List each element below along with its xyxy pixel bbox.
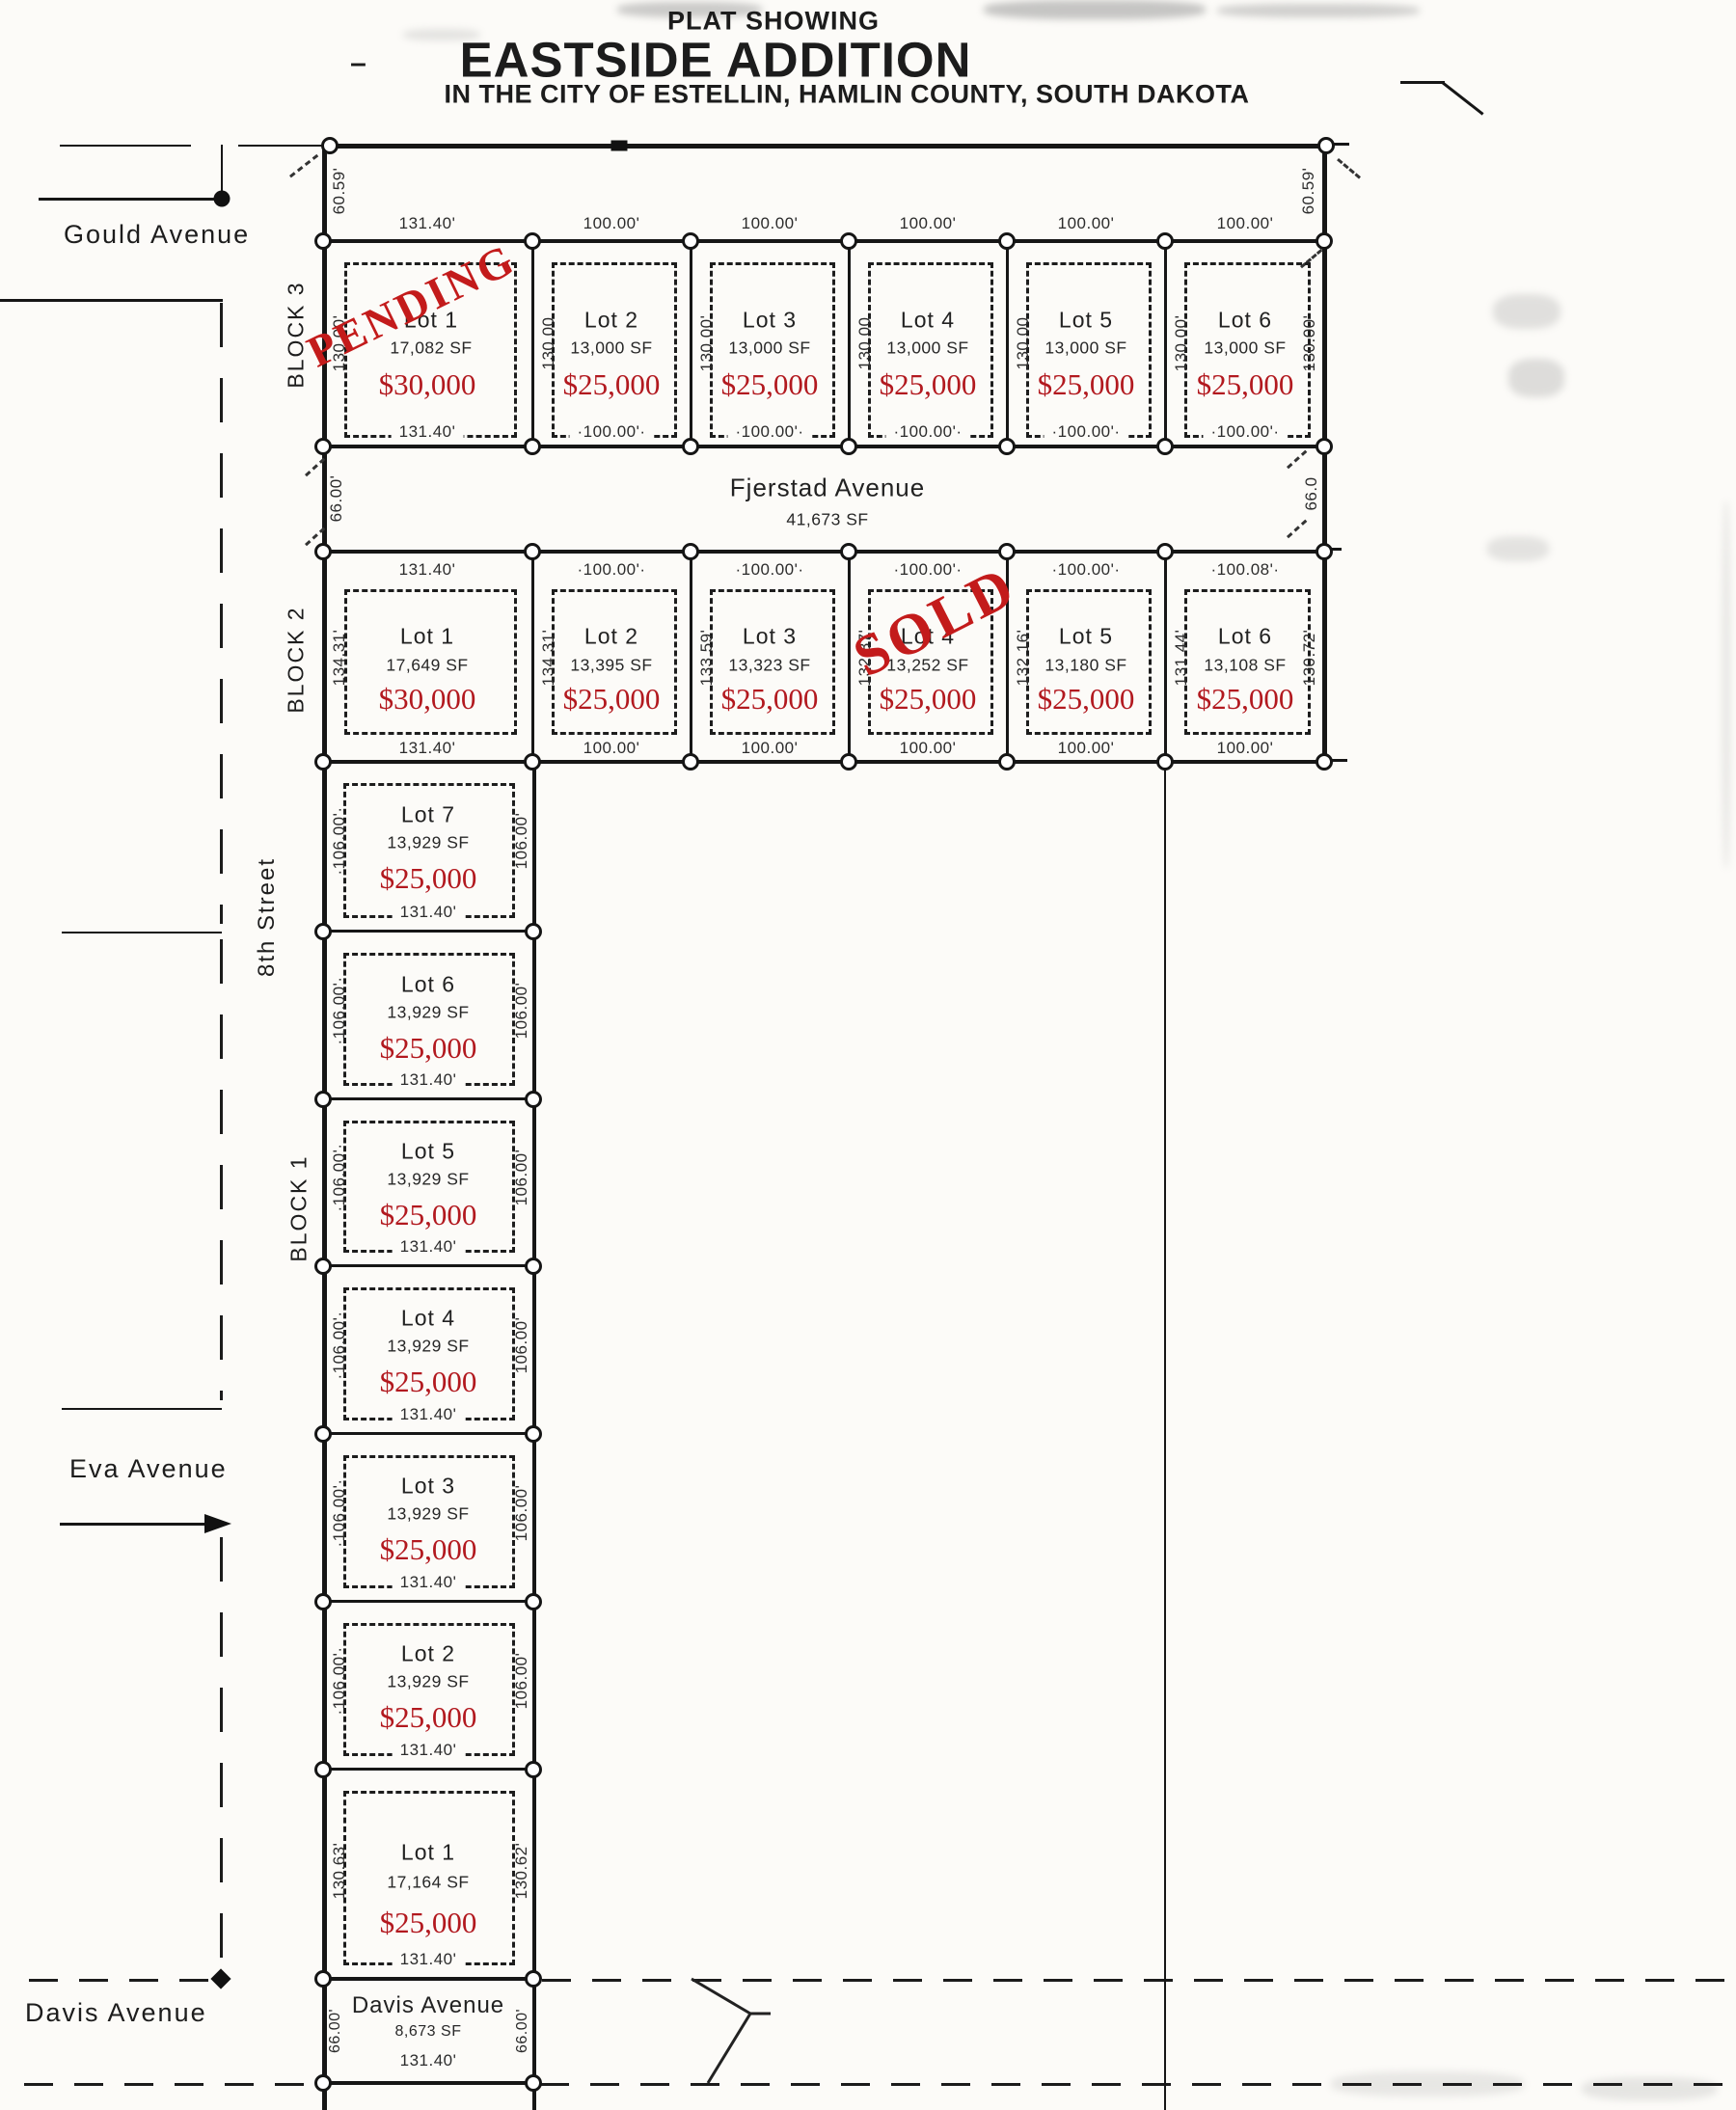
street-label-gould: Gould Avenue bbox=[64, 220, 250, 250]
dim-label: ·106.00'· bbox=[330, 976, 349, 1044]
lot-area: 17,082 SF bbox=[390, 338, 472, 359]
lot-name: Lot 6 bbox=[401, 972, 455, 998]
dim-label: 130.00 bbox=[855, 317, 875, 370]
road-arrowhead-icon bbox=[204, 1514, 231, 1533]
dim-label: 130.63' bbox=[330, 1843, 349, 1900]
lot-name: Lot 4 bbox=[901, 308, 955, 334]
lot-price: $25,000 bbox=[1197, 367, 1294, 402]
dim-label: 100.00' bbox=[900, 214, 957, 233]
lot-name: Lot 1 bbox=[401, 1840, 455, 1866]
dim-label: ·106.00'· bbox=[330, 1478, 349, 1547]
survey-marker-icon bbox=[1317, 137, 1335, 154]
lot-area: 13,108 SF bbox=[1204, 656, 1286, 676]
dim-label: 60.59' bbox=[330, 168, 349, 215]
lot-area: 13,929 SF bbox=[387, 833, 469, 853]
road-intersection-marker bbox=[214, 191, 231, 207]
dim-label: 131.40' bbox=[399, 560, 456, 580]
survey-marker-icon bbox=[998, 753, 1016, 771]
survey-marker-icon bbox=[682, 232, 699, 250]
lot-area: 13,929 SF bbox=[387, 1337, 469, 1357]
dim-label: ·100.00'· bbox=[727, 422, 811, 442]
survey-marker-icon bbox=[525, 1091, 542, 1108]
lot-area: 13,929 SF bbox=[387, 1170, 469, 1190]
dim-label: 131.40' bbox=[399, 739, 456, 758]
lot-price: $25,000 bbox=[380, 1031, 477, 1066]
dim-label: 100.00' bbox=[583, 739, 640, 758]
survey-marker-icon bbox=[314, 1091, 332, 1108]
dim-label: 66.00' bbox=[514, 2009, 531, 2053]
road-line bbox=[238, 145, 330, 147]
lot-line bbox=[323, 1600, 535, 1603]
dim-label: 134.31' bbox=[330, 630, 349, 687]
survey-marker-icon bbox=[524, 753, 541, 771]
street-label-eva: Eva Avenue bbox=[69, 1454, 228, 1484]
lot-price: $25,000 bbox=[880, 367, 977, 402]
lot-area: 13,180 SF bbox=[1044, 656, 1126, 676]
subtitle-leader-line bbox=[1441, 81, 1483, 116]
leader-dash bbox=[1287, 450, 1307, 470]
survey-marker-icon bbox=[525, 1425, 542, 1443]
survey-marker-icon bbox=[682, 543, 699, 560]
lot-name: Lot 3 bbox=[743, 308, 797, 334]
survey-marker-icon bbox=[321, 137, 339, 154]
lot-name: Lot 1 bbox=[400, 624, 454, 650]
survey-marker-icon bbox=[314, 923, 332, 940]
dim-label: 106.00' bbox=[512, 1485, 531, 1542]
lot-price: $25,000 bbox=[380, 1198, 477, 1232]
lot-price: $25,000 bbox=[380, 1700, 477, 1735]
road-centerline-dashed bbox=[220, 303, 223, 924]
survey-marker-icon bbox=[525, 1761, 542, 1778]
street-label-davis-parcel: Davis Avenue bbox=[352, 1992, 504, 2019]
road-line-dashed bbox=[29, 1979, 208, 1982]
lot-name: Lot 4 bbox=[401, 1306, 455, 1332]
lot-price: $25,000 bbox=[563, 367, 661, 402]
scan-artifact bbox=[1487, 536, 1549, 561]
dim-label: 130.00 bbox=[539, 317, 558, 370]
dim-label: 133.59' bbox=[697, 630, 717, 687]
dim-label: ·100.00'· bbox=[1051, 560, 1120, 580]
lot-line bbox=[1164, 240, 1167, 446]
dim-label: 60.59' bbox=[1299, 168, 1318, 215]
dim-label: 100.00' bbox=[1217, 739, 1274, 758]
survey-marker-icon bbox=[525, 1970, 542, 1988]
lot-area: 13,000 SF bbox=[1044, 338, 1126, 359]
survey-marker-icon bbox=[314, 543, 332, 560]
survey-marker-icon bbox=[682, 438, 699, 455]
dim-label: ·100.00'· bbox=[1044, 422, 1127, 442]
dim-label: 100.00' bbox=[583, 214, 640, 233]
survey-marker-icon bbox=[998, 232, 1016, 250]
title-dash: – bbox=[350, 47, 367, 80]
lot-price: $25,000 bbox=[380, 1365, 477, 1399]
dim-label: ·106.00'· bbox=[330, 1143, 349, 1211]
lot-line bbox=[323, 1264, 535, 1267]
survey-marker-icon bbox=[998, 543, 1016, 560]
dim-label: 106.00' bbox=[512, 1653, 531, 1710]
dim-label: 134.31' bbox=[539, 630, 558, 687]
plat-north-boundary bbox=[330, 144, 1326, 149]
dim-label: 131.40' bbox=[393, 1405, 465, 1424]
dim-label: 100.00' bbox=[1058, 739, 1115, 758]
leader-dash bbox=[1337, 158, 1361, 179]
lot-area: 17,164 SF bbox=[387, 1873, 469, 1893]
scan-artifact bbox=[1493, 294, 1560, 329]
survey-marker-icon bbox=[314, 753, 332, 771]
dim-label: 106.00' bbox=[512, 813, 531, 870]
dim-label: 131.40' bbox=[392, 422, 464, 442]
section-line bbox=[1164, 764, 1166, 2110]
dim-label: 66.00' bbox=[327, 475, 346, 523]
dim-label: 131.40' bbox=[393, 1237, 465, 1257]
lot-price: $25,000 bbox=[380, 861, 477, 896]
lot-line bbox=[848, 240, 851, 446]
lot-line bbox=[531, 240, 534, 446]
dim-label: 131.40' bbox=[399, 214, 456, 233]
dim-label: 106.00' bbox=[512, 1317, 531, 1374]
boundary-marker-icon bbox=[611, 141, 628, 151]
lot-price: $30,000 bbox=[379, 682, 476, 717]
dim-label: 100.00' bbox=[900, 739, 957, 758]
dim-label: ·106.00'· bbox=[330, 806, 349, 875]
lot-name: Lot 5 bbox=[401, 1139, 455, 1165]
lot-name: Lot 2 bbox=[584, 624, 638, 650]
survey-marker-icon bbox=[1316, 753, 1333, 771]
block1-label: BLOCK 1 bbox=[286, 1154, 312, 1261]
road-line-dashed bbox=[24, 2083, 319, 2086]
survey-marker-icon bbox=[314, 1970, 332, 1988]
lot-price: $25,000 bbox=[1197, 682, 1294, 717]
fjerstad-area: 41,673 SF bbox=[786, 510, 868, 530]
lot-line bbox=[690, 552, 692, 762]
survey-marker-icon bbox=[525, 2074, 542, 2092]
lot-name: Lot 6 bbox=[1218, 308, 1272, 334]
survey-marker-icon bbox=[525, 1258, 542, 1275]
survey-marker-icon bbox=[314, 1761, 332, 1778]
survey-marker-icon bbox=[840, 753, 857, 771]
lot-area: 13,000 SF bbox=[886, 338, 968, 359]
dim-label: 130.72' bbox=[1300, 630, 1319, 687]
davis-south-line bbox=[323, 2081, 535, 2085]
lot-area: 13,929 SF bbox=[387, 1504, 469, 1525]
dim-label: ·100.00'· bbox=[569, 422, 653, 442]
street-label-fjerstad: Fjerstad Avenue bbox=[730, 473, 925, 503]
scan-artifact bbox=[1722, 501, 1730, 868]
survey-marker-icon bbox=[314, 1258, 332, 1275]
dim-label: 130.00' bbox=[697, 315, 717, 372]
dim-label: 100.00' bbox=[1217, 214, 1274, 233]
survey-marker-icon bbox=[840, 232, 857, 250]
davis-leader-brace bbox=[670, 1969, 786, 2095]
survey-marker-icon bbox=[524, 543, 541, 560]
road-centerline-dashed bbox=[220, 939, 223, 1400]
survey-marker-icon bbox=[840, 543, 857, 560]
dim-label: ·100.00'· bbox=[577, 560, 645, 580]
lot-line bbox=[848, 552, 851, 762]
lot-name: Lot 5 bbox=[1059, 308, 1113, 334]
street-label-8th: 8th Street bbox=[254, 857, 281, 977]
lot-area: 17,649 SF bbox=[386, 656, 468, 676]
dim-label: ·100.08'· bbox=[1210, 560, 1279, 580]
dim-label: 130.62' bbox=[512, 1843, 531, 1900]
lot-line bbox=[323, 1768, 535, 1771]
dim-label: 66.00' bbox=[327, 2009, 344, 2053]
dim-label: 130.00' bbox=[1172, 315, 1191, 372]
street-label-davis: Davis Avenue bbox=[25, 1998, 207, 2028]
lot-name: Lot 5 bbox=[1059, 624, 1113, 650]
survey-marker-icon bbox=[525, 1593, 542, 1610]
survey-marker-icon bbox=[524, 438, 541, 455]
dim-label: 66.0 bbox=[1302, 476, 1321, 510]
road-line bbox=[62, 1408, 222, 1410]
block2-label: BLOCK 2 bbox=[284, 606, 310, 713]
dim-label: 100.00' bbox=[742, 214, 799, 233]
survey-marker-icon bbox=[840, 438, 857, 455]
lot-area: 13,929 SF bbox=[387, 1672, 469, 1692]
road-line bbox=[0, 299, 223, 302]
lot-area: 13,395 SF bbox=[570, 656, 652, 676]
dim-label: 131.40' bbox=[393, 1070, 465, 1090]
block3-north-line bbox=[323, 239, 1326, 243]
survey-marker-icon bbox=[1316, 232, 1333, 250]
lot-area: 13,929 SF bbox=[387, 1003, 469, 1023]
lot-area: 13,323 SF bbox=[728, 656, 810, 676]
dim-label: 131.40' bbox=[393, 1741, 465, 1760]
road-arrowhead-icon bbox=[210, 1968, 231, 1988]
lot-name: Lot 3 bbox=[743, 624, 797, 650]
block2-north-line bbox=[323, 550, 1326, 554]
road-line bbox=[39, 198, 222, 201]
survey-marker-icon bbox=[1316, 543, 1333, 560]
dim-label: ·106.00'· bbox=[330, 1311, 349, 1379]
lot-area: 13,000 SF bbox=[728, 338, 810, 359]
lot-name: Lot 3 bbox=[401, 1474, 455, 1500]
survey-marker-icon bbox=[314, 438, 332, 455]
lot-price: $25,000 bbox=[380, 1906, 477, 1940]
lot-name: Lot 2 bbox=[401, 1641, 455, 1667]
survey-marker-icon bbox=[314, 2074, 332, 2092]
scan-artifact bbox=[1508, 359, 1564, 397]
survey-marker-icon bbox=[314, 1425, 332, 1443]
lot-name: Lot 2 bbox=[584, 308, 638, 334]
lot-line bbox=[1006, 240, 1009, 446]
dim-label: ·100.00'· bbox=[1203, 422, 1287, 442]
subtitle-leader-line bbox=[1400, 81, 1445, 84]
lot-price: $25,000 bbox=[721, 682, 819, 717]
lot-price: $25,000 bbox=[721, 367, 819, 402]
dim-label: 130.00 bbox=[1014, 317, 1033, 370]
lot-line bbox=[323, 1097, 535, 1100]
scan-artifact bbox=[1582, 2077, 1717, 2100]
lot-price: $25,000 bbox=[880, 682, 977, 717]
lot-price: $25,000 bbox=[563, 682, 661, 717]
leader-dash bbox=[1287, 520, 1307, 539]
lot-line bbox=[690, 240, 692, 446]
plat-sheet: PLAT SHOWING – EASTSIDE ADDITION IN THE … bbox=[0, 0, 1736, 2110]
dim-label: 132.16' bbox=[1014, 630, 1033, 687]
lot-price: $25,000 bbox=[380, 1532, 477, 1567]
lot-area: 13,000 SF bbox=[1204, 338, 1286, 359]
lot-price: $25,000 bbox=[1038, 367, 1135, 402]
dim-label: 100.00' bbox=[742, 739, 799, 758]
dim-label: 100.00' bbox=[1058, 214, 1115, 233]
survey-marker-icon bbox=[314, 1593, 332, 1610]
block2-south-line bbox=[323, 760, 1326, 764]
lot-line bbox=[323, 930, 535, 933]
block3-south-line bbox=[323, 445, 1326, 448]
lot-line bbox=[323, 1432, 535, 1435]
survey-marker-icon bbox=[1156, 543, 1174, 560]
dim-label: 106.00' bbox=[512, 983, 531, 1040]
dim-label: ·100.00'· bbox=[885, 422, 969, 442]
lot-price: $30,000 bbox=[379, 367, 476, 402]
davis-parcel-area: 8,673 SF bbox=[395, 2023, 462, 2041]
lot-name: Lot 7 bbox=[401, 802, 455, 828]
scan-artifact bbox=[1217, 4, 1420, 17]
survey-marker-icon bbox=[1156, 232, 1174, 250]
leader-dash bbox=[289, 154, 318, 178]
dim-label: 131.40' bbox=[393, 903, 465, 922]
lot-line bbox=[323, 1977, 535, 1981]
survey-marker-icon bbox=[1316, 438, 1333, 455]
road-line bbox=[62, 932, 222, 933]
road-line bbox=[60, 145, 191, 147]
lot-line bbox=[1164, 552, 1167, 762]
lot-price: $25,000 bbox=[1038, 682, 1135, 717]
dim-label: 131.44' bbox=[1172, 630, 1191, 687]
dim-label: 131.40' bbox=[393, 1573, 465, 1592]
survey-marker-icon bbox=[682, 753, 699, 771]
dim-label: 106.00' bbox=[512, 1150, 531, 1206]
lot-area: 13,000 SF bbox=[570, 338, 652, 359]
survey-marker-icon bbox=[524, 232, 541, 250]
dim-label: 131.40' bbox=[393, 1950, 465, 1969]
road-centerline-dashed bbox=[220, 1537, 223, 1965]
survey-marker-icon bbox=[998, 438, 1016, 455]
lot-line bbox=[531, 552, 534, 762]
lot-name: Lot 6 bbox=[1218, 624, 1272, 650]
plat-subtitle: IN THE CITY OF ESTELLIN, HAMLIN COUNTY, … bbox=[445, 80, 1250, 110]
survey-marker-icon bbox=[1156, 438, 1174, 455]
survey-marker-icon bbox=[525, 923, 542, 940]
dim-label: ·106.00'· bbox=[330, 1646, 349, 1715]
dim-label: ·100.00'· bbox=[735, 560, 803, 580]
survey-marker-icon bbox=[314, 232, 332, 250]
scan-artifact bbox=[984, 0, 1206, 19]
survey-marker-icon bbox=[1156, 753, 1174, 771]
road-line bbox=[60, 1523, 206, 1526]
dim-label: 130.00' bbox=[1300, 315, 1319, 372]
dim-label: 131.40' bbox=[400, 2051, 457, 2070]
